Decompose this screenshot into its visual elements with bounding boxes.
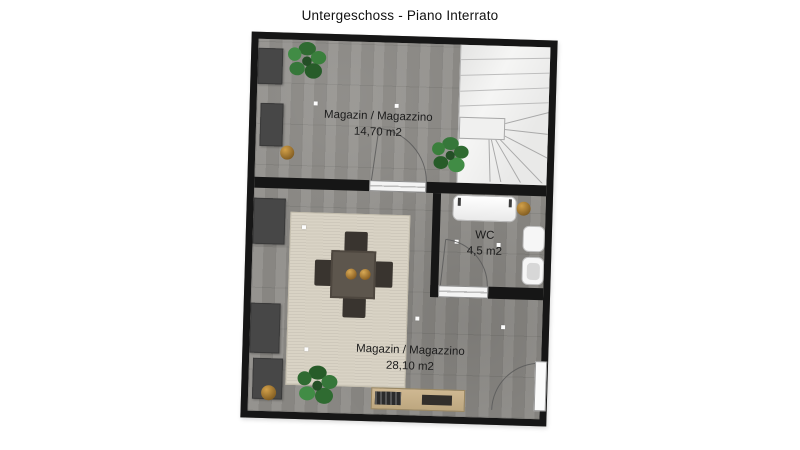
sideboard — [371, 387, 466, 412]
tray — [422, 395, 452, 406]
downlight — [302, 225, 306, 229]
shelf-upper-1 — [257, 48, 283, 85]
tap-icon — [458, 198, 461, 206]
toilet-bowl — [527, 263, 540, 280]
room-label-storage-upper: Magazin / Magazzino 14,70 m2 — [298, 106, 459, 143]
door-leaf-entry — [534, 361, 547, 411]
control-panel — [375, 391, 401, 405]
downlight — [501, 325, 505, 329]
room-label-storage-lower: Magazin / Magazzino 28,10 m2 — [330, 340, 491, 377]
shelf-lower-2 — [249, 303, 280, 354]
tap-icon — [509, 199, 512, 207]
room-label-wc: WC 4,5 m2 — [432, 226, 537, 261]
downlight — [304, 347, 308, 351]
downlight — [415, 317, 419, 321]
shelf-upper-2 — [259, 103, 283, 147]
shelf-lower-1 — [253, 198, 286, 245]
door-threshold-middle — [369, 180, 426, 193]
chair — [374, 261, 393, 288]
chair — [342, 297, 366, 318]
floor-plan: Magazin / Magazzino 14,70 m2 WC 4,5 m2 M… — [240, 32, 557, 427]
sink-vanity — [452, 195, 517, 223]
chair — [344, 231, 368, 252]
page-title: Untergeschoss - Piano Interrato — [0, 8, 800, 23]
downlight — [314, 101, 318, 105]
plant-icon-upper-left — [283, 38, 330, 85]
door-threshold-wc — [438, 285, 488, 298]
downlight — [395, 104, 399, 108]
